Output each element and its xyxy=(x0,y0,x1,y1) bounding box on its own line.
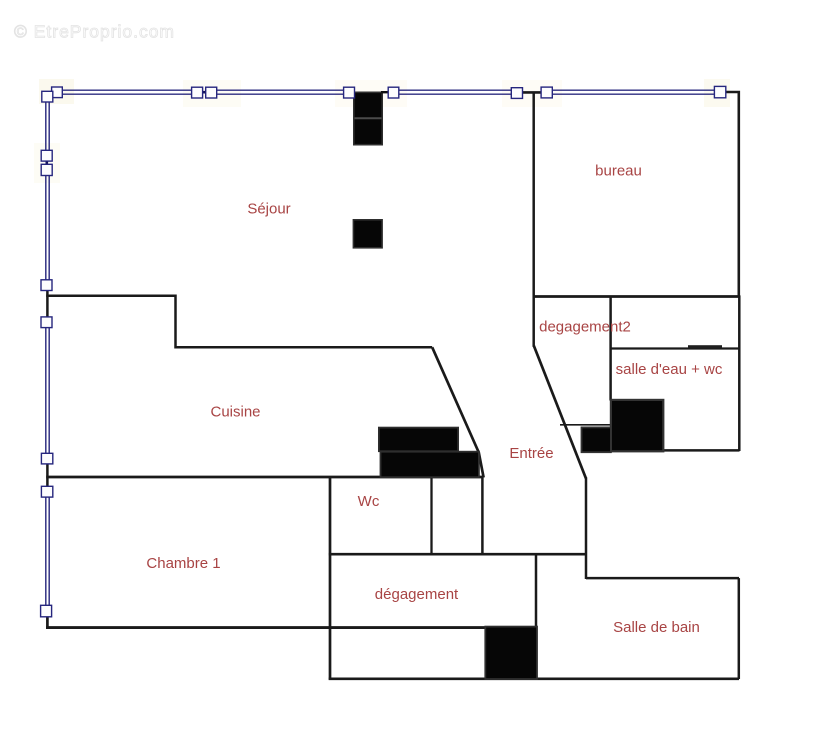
svg-text:Séjour: Séjour xyxy=(247,201,290,218)
svg-text:Salle de bain: Salle de bain xyxy=(613,619,700,636)
svg-text:dégagement: dégagement xyxy=(375,586,459,603)
svg-text:Cuisine: Cuisine xyxy=(210,404,260,421)
svg-text:© EtreProprio.com: © EtreProprio.com xyxy=(14,22,174,42)
svg-text:degagement2: degagement2 xyxy=(539,319,631,336)
svg-text:Chambre 1: Chambre 1 xyxy=(146,555,220,572)
svg-text:bureau: bureau xyxy=(595,163,642,180)
svg-text:Wc: Wc xyxy=(358,493,380,510)
svg-text:salle d'eau + wc: salle d'eau + wc xyxy=(616,361,723,378)
svg-text:Entrée: Entrée xyxy=(509,445,553,462)
